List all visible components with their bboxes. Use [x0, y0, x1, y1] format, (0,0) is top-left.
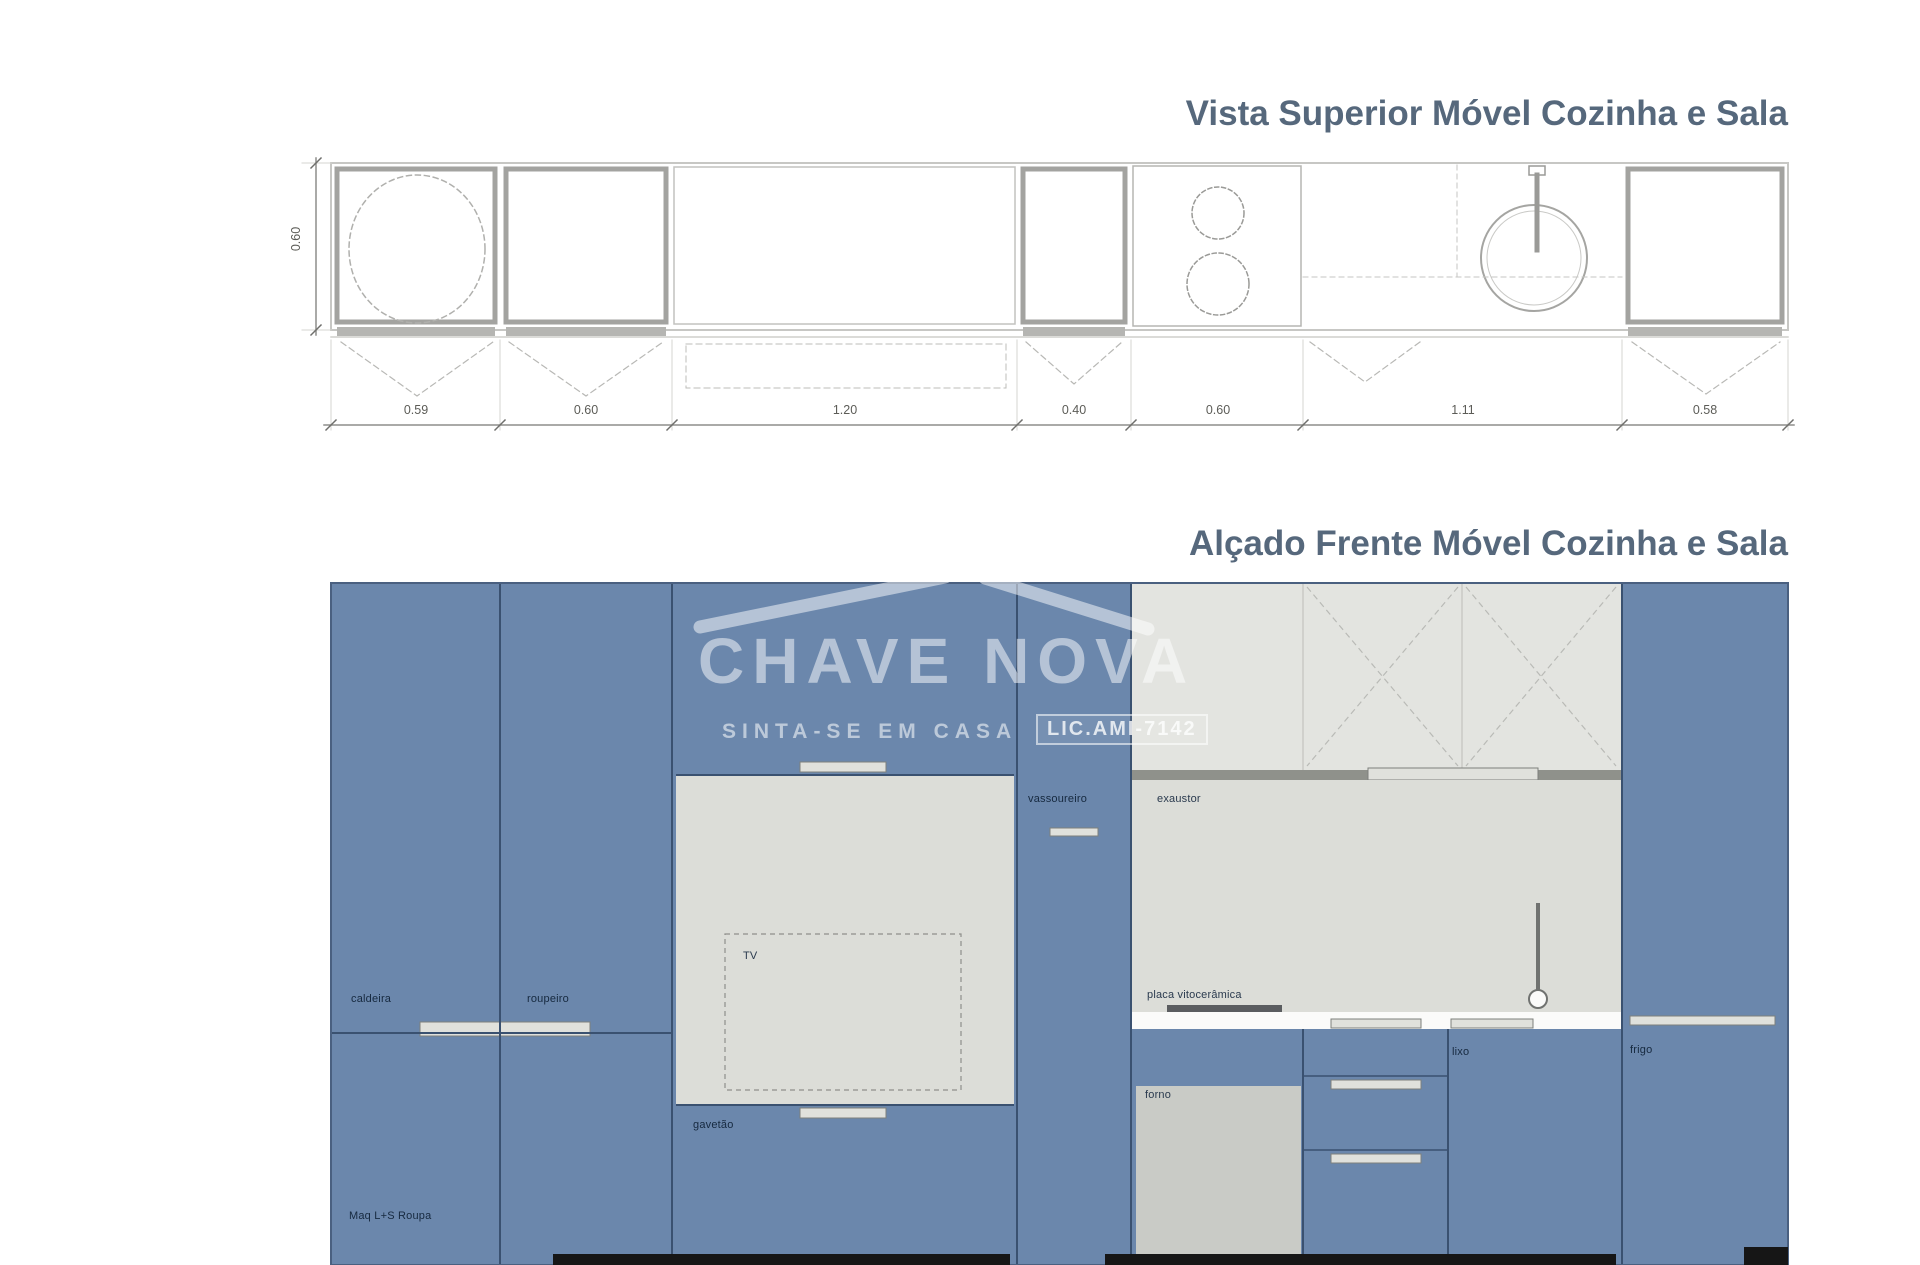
- dim-0.60-b: 0.60: [1183, 403, 1253, 417]
- dim-0.59: 0.59: [381, 403, 451, 417]
- broom-door-handle: [1050, 828, 1098, 836]
- tv-lower-handle: [800, 1108, 886, 1118]
- label-lixo: lixo: [1452, 1046, 1469, 1058]
- label-caldeira: caldeira: [351, 993, 391, 1005]
- dim-1.11: 1.11: [1428, 403, 1498, 417]
- label-tv: TV: [743, 950, 757, 962]
- plan-washer-box: [337, 169, 495, 322]
- watermark-tagline: SINTA-SE EM CASA: [722, 720, 1017, 744]
- upper-cabinet-handle: [1368, 768, 1538, 780]
- dim-0.40: 0.40: [1039, 403, 1109, 417]
- drawer-handle-2: [1331, 1080, 1421, 1089]
- drawer-handle-3: [1331, 1154, 1421, 1163]
- label-roupeiro: roupeiro: [527, 993, 569, 1005]
- plan-broom-box: [1023, 169, 1125, 322]
- cooktop-strip: [1167, 1005, 1282, 1012]
- hob-burner-large: [1187, 253, 1249, 315]
- plan-wardrobe-box: [506, 169, 666, 322]
- label-vassoureiro: vassoureiro: [1028, 793, 1087, 805]
- dim-0.58: 0.58: [1670, 403, 1740, 417]
- label-frigo: frigo: [1630, 1044, 1652, 1056]
- drawing-canvas: Vista Superior Móvel Cozinha e Sala Alça…: [0, 0, 1920, 1265]
- dim-depth-0.60: 0.60: [289, 227, 303, 251]
- backsplash-panel: [1131, 780, 1622, 1012]
- upper-gray-cabinets: [1131, 583, 1622, 780]
- dim-0.60-a: 0.60: [551, 403, 621, 417]
- watermark-brand: CHAVE NOVA: [698, 624, 1195, 698]
- oven-front: [1136, 1086, 1301, 1260]
- tv-niche: [676, 775, 1014, 1105]
- fridge-door-handle: [1630, 1016, 1775, 1025]
- plan-view-drawing: [302, 158, 1794, 430]
- label-forno: forno: [1145, 1089, 1171, 1101]
- label-exaustor: exaustor: [1157, 793, 1201, 805]
- sink-icon: [1481, 166, 1587, 311]
- plan-fridge-box: [1628, 169, 1782, 322]
- label-placa-vitroceramica: placa vitocerâmica: [1147, 989, 1242, 1001]
- label-maq-roupa: Maq L+S Roupa: [349, 1210, 431, 1222]
- label-gavetao: gavetão: [693, 1119, 734, 1131]
- plan-title: Vista Superior Móvel Cozinha e Sala: [1186, 94, 1788, 134]
- washing-machine-circle: [349, 175, 485, 323]
- watermark-license-badge: LIC.AMI-7142: [1036, 714, 1208, 745]
- hob-burner-small: [1192, 187, 1244, 239]
- tv-upper-handle: [800, 762, 886, 772]
- dim-1.20: 1.20: [810, 403, 880, 417]
- elevation-title: Alçado Frente Móvel Cozinha e Sala: [1189, 524, 1788, 564]
- drawer-handle-1: [1331, 1019, 1421, 1028]
- bin-door-handle: [1451, 1019, 1533, 1028]
